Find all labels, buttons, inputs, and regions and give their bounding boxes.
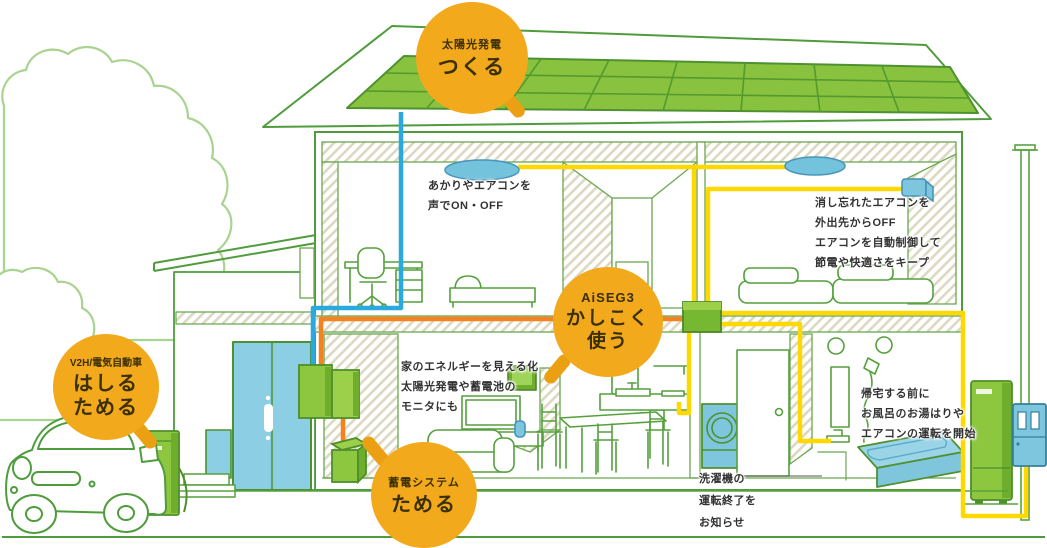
washing-machine <box>702 404 742 468</box>
badge-aiseg3-action2: 使う <box>587 331 629 354</box>
ceiling-band-2f <box>322 142 956 162</box>
badge-aiseg3-category: AiSEG3 <box>581 290 635 305</box>
laundry-door <box>737 350 789 476</box>
annotation-energy-monitor: 家のエネルギーを見える化 太陽光発電や蓄電池の モニタにも <box>401 357 539 417</box>
badge-solar: 太陽光発電 つくる <box>416 2 528 114</box>
power-meter <box>1013 404 1046 466</box>
badge-v2h-category: V2H/電気自動車 <box>70 354 142 369</box>
distribution-board <box>299 365 359 418</box>
storage-battery <box>332 438 366 482</box>
badge-v2h-action2: ためる <box>73 396 139 420</box>
speaker <box>515 421 525 437</box>
badge-battery-action: ためる <box>391 493 457 517</box>
roof <box>263 26 991 127</box>
annex-hatch-band <box>176 312 315 324</box>
badge-aiseg3: AiSEG3 かしこく 使う <box>553 267 663 377</box>
badge-battery: 蓄電システム ためる <box>371 442 477 548</box>
smart-home-diagram: 太陽光発電 つくる AiSEG3 かしこく 使う V2H/電気自動車 はしる た… <box>0 0 1047 548</box>
aiseg3-hub <box>683 302 721 332</box>
badge-v2h-action1: はしる <box>73 372 139 396</box>
badge-solar-action: つくる <box>438 55 507 80</box>
badge-v2h: V2H/電気自動車 はしる ためる <box>53 334 159 440</box>
window-upper <box>300 248 314 298</box>
annotation-bath-remote: 帰宅する前に お風呂のお湯はりや エアコンの運転を開始 <box>861 384 976 444</box>
bath-mirror <box>831 367 849 427</box>
badge-battery-category: 蓄電システム <box>388 474 460 490</box>
car-grille <box>32 472 80 485</box>
badge-aiseg3-action1: かしこく <box>566 308 650 331</box>
entrance-window <box>206 430 231 478</box>
wall-laundry-right <box>690 332 700 478</box>
annotation-laundry-notice: 洗濯機の 運転終了を お知らせ <box>699 468 757 534</box>
annotation-aircon-remote: 消し忘れたエアコンを 外出先からOFF エアコンを自動制御して 節電や快適さをキ… <box>815 193 941 273</box>
house-illustration <box>0 0 1047 548</box>
badge-solar-category: 太陽光発電 <box>442 36 502 52</box>
ceiling-light-bedroom <box>785 157 845 175</box>
wall-2f-left <box>322 162 338 316</box>
annotation-voice-control: あかりやエアコンを 声でON・OFF <box>428 176 532 216</box>
door-handle <box>264 404 273 432</box>
car-headlight <box>13 457 31 479</box>
